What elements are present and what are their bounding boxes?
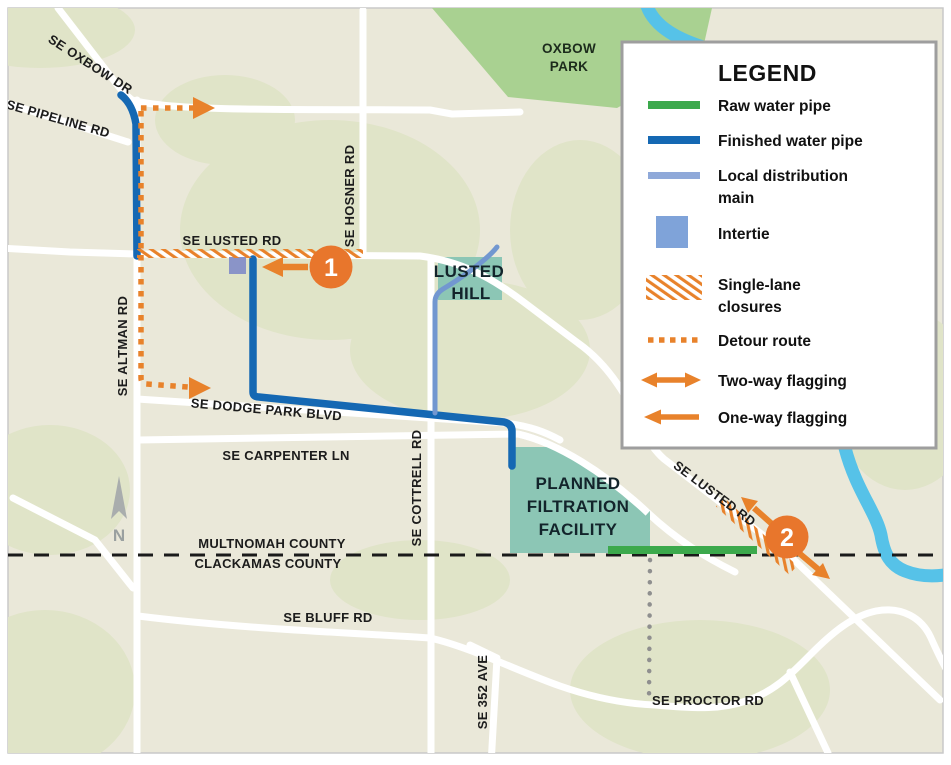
lusted-hill-label-line2: HILL: [451, 284, 490, 303]
county-label-multnomah: MULTNOMAH COUNTY: [198, 536, 346, 551]
intertie-square: [229, 257, 246, 274]
finished-water-pipe-swatch: [648, 136, 700, 144]
legend-label-raw: Raw water pipe: [718, 98, 831, 115]
oxbow-park-label-line1: OXBOW: [542, 41, 596, 56]
road-label-se-lusted-rd-west: SE LUSTED RD: [183, 233, 282, 248]
legend-label-finished: Finished water pipe: [718, 133, 863, 150]
road-label-se-352-ave: SE 352 AVE: [475, 655, 490, 730]
road-label-se-proctor-rd: SE PROCTOR RD: [652, 693, 764, 708]
legend-label-local-1: Local distribution: [718, 168, 848, 185]
project-map-page: 1 2 N SE OXBOW DR SE PIPELINE RD SE ALTM…: [0, 0, 951, 765]
closures-swatch: [646, 275, 702, 300]
legend-label-closures-2: closures: [718, 299, 782, 316]
road-label-se-bluff-rd: SE BLUFF RD: [283, 610, 372, 625]
raw-water-pipe-swatch: [648, 101, 700, 109]
legend-panel: LEGEND Raw water pipe Finished water pip…: [622, 42, 936, 448]
marker-2-number: 2: [780, 524, 794, 552]
intertie-swatch: [656, 216, 688, 248]
legend-title: LEGEND: [718, 60, 817, 86]
marker-2: 2: [766, 516, 809, 559]
marker-1: 1: [310, 246, 353, 289]
road-label-se-cottrell-rd: SE COTTRELL RD: [409, 430, 424, 547]
legend-label-one-way: One-way flagging: [718, 410, 847, 427]
road-label-se-carpenter-ln: SE CARPENTER LN: [222, 448, 349, 463]
legend-label-intertie: Intertie: [718, 226, 770, 243]
legend-label-closures-1: Single-lane: [718, 277, 801, 294]
marker-1-number: 1: [324, 254, 338, 282]
facility-label-line2: FILTRATION: [527, 497, 630, 516]
map-canvas: 1 2 N SE OXBOW DR SE PIPELINE RD SE ALTM…: [0, 0, 951, 765]
facility-label-line1: PLANNED: [536, 474, 621, 493]
facility-label-line3: FACILITY: [539, 520, 618, 539]
legend-label-local-2: main: [718, 190, 754, 207]
north-arrow-label: N: [113, 526, 125, 545]
legend-label-detour: Detour route: [718, 333, 811, 350]
lusted-hill-label-line1: LUSTED: [434, 262, 504, 281]
oxbow-park-label-line2: PARK: [550, 59, 588, 74]
legend-label-two-way: Two-way flagging: [718, 373, 847, 390]
road-label-se-altman-rd: SE ALTMAN RD: [115, 296, 130, 396]
road-label-se-hosner-rd: SE HOSNER RD: [342, 145, 357, 248]
local-distribution-swatch: [648, 172, 700, 179]
county-label-clackamas: CLACKAMAS COUNTY: [194, 556, 341, 571]
